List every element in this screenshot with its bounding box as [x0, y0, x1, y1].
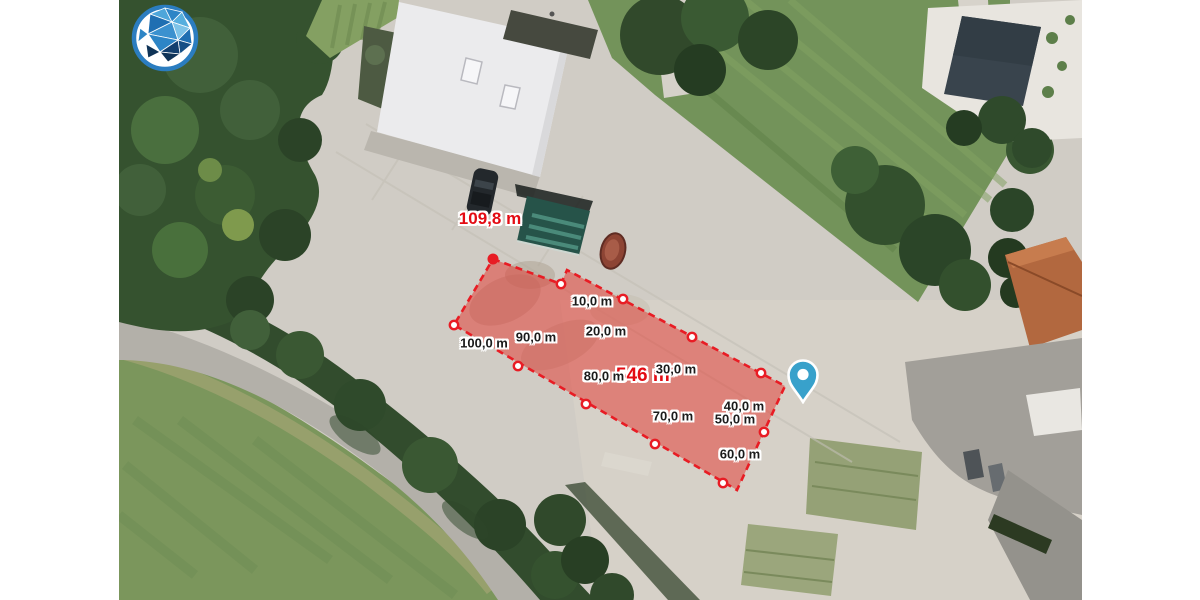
map-margin-left — [0, 0, 119, 600]
aerial-imagery[interactable] — [119, 0, 1082, 600]
pin-glyph — [789, 361, 818, 403]
bavaria-logo — [131, 4, 199, 72]
roof-vent — [550, 12, 555, 17]
pin-dot — [797, 369, 808, 380]
small-white-building — [1026, 388, 1082, 436]
location-pin[interactable] — [781, 348, 825, 404]
hedge-lobe — [365, 45, 385, 65]
map-margin-right — [1082, 0, 1200, 600]
aerial-scenery — [119, 0, 1082, 600]
map-canvas: 109,8 m 546 m² 10,0 m20,0 m30,0 m40,0 m5… — [0, 0, 1200, 600]
